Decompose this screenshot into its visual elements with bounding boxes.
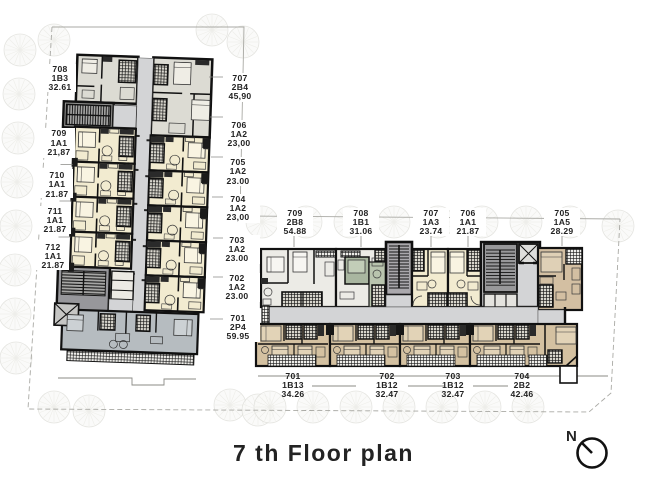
svg-text:45,90: 45,90 <box>228 91 251 101</box>
svg-text:23.00: 23.00 <box>225 291 248 301</box>
svg-text:31.06: 31.06 <box>349 226 372 236</box>
svg-text:54.88: 54.88 <box>283 226 306 236</box>
svg-text:21.87: 21.87 <box>43 224 66 234</box>
svg-text:N: N <box>566 428 577 445</box>
svg-text:34.26: 34.26 <box>281 389 304 399</box>
svg-text:59.95: 59.95 <box>226 331 249 341</box>
svg-text:23,00: 23,00 <box>226 212 249 222</box>
svg-text:32.47: 32.47 <box>375 389 398 399</box>
svg-text:7 th Floor plan: 7 th Floor plan <box>233 440 414 466</box>
svg-text:23.00: 23.00 <box>226 176 249 186</box>
svg-text:23.74: 23.74 <box>419 226 442 236</box>
svg-text:709: 709 <box>51 128 66 138</box>
svg-text:21,87: 21,87 <box>47 147 70 157</box>
svg-text:1A2: 1A2 <box>230 166 247 176</box>
svg-text:23,00: 23,00 <box>227 138 250 148</box>
svg-text:23.00: 23.00 <box>225 253 248 263</box>
svg-text:32.61: 32.61 <box>48 82 71 92</box>
svg-text:1A1: 1A1 <box>49 179 66 189</box>
svg-text:28.29: 28.29 <box>550 226 573 236</box>
svg-text:32.47: 32.47 <box>441 389 464 399</box>
svg-text:21.87: 21.87 <box>45 189 68 199</box>
svg-text:21.87: 21.87 <box>456 226 479 236</box>
svg-text:21.87: 21.87 <box>41 260 64 270</box>
svg-text:42.46: 42.46 <box>510 389 533 399</box>
